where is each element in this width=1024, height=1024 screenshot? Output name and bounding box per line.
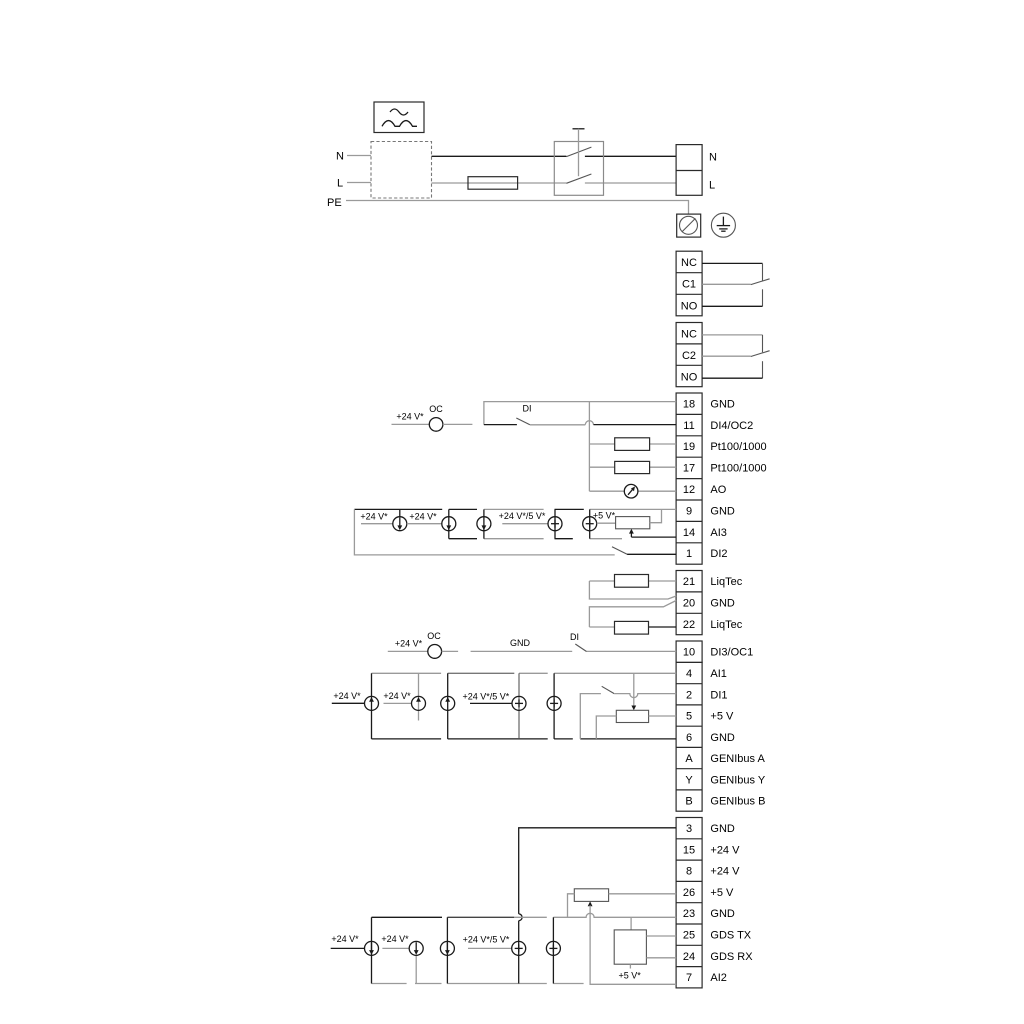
svg-text:GDS RX: GDS RX <box>710 951 753 963</box>
svg-text:15: 15 <box>683 844 695 856</box>
svg-text:A: A <box>685 753 693 765</box>
svg-text:+5 V*: +5 V* <box>593 511 616 521</box>
svg-text:+24 V*: +24 V* <box>360 512 388 522</box>
svg-text:+5 V: +5 V <box>710 711 734 723</box>
svg-text:GDS TX: GDS TX <box>710 930 751 942</box>
svg-text:19: 19 <box>683 441 695 453</box>
svg-text:5: 5 <box>686 711 692 723</box>
svg-text:AI1: AI1 <box>710 668 727 680</box>
svg-text:GND: GND <box>710 598 735 610</box>
svg-text:GENIbus B: GENIbus B <box>710 796 765 808</box>
svg-text:+24 V*: +24 V* <box>383 691 411 701</box>
svg-text:DI4/OC2: DI4/OC2 <box>710 420 753 432</box>
svg-text:NC: NC <box>681 328 697 340</box>
svg-text:LiqTec: LiqTec <box>710 619 742 631</box>
svg-text:8: 8 <box>686 866 692 878</box>
svg-text:B: B <box>685 796 692 808</box>
svg-text:7: 7 <box>686 972 692 984</box>
svg-text:DI: DI <box>570 632 579 642</box>
svg-text:Y: Y <box>685 774 693 786</box>
svg-text:GND: GND <box>710 398 735 410</box>
svg-text:+24 V*: +24 V* <box>333 691 361 701</box>
svg-text:N: N <box>709 152 717 164</box>
svg-text:L: L <box>709 180 715 192</box>
svg-text:23: 23 <box>683 908 695 920</box>
svg-text:NO: NO <box>681 300 698 312</box>
svg-text:18: 18 <box>683 398 695 410</box>
svg-text:AO: AO <box>710 484 726 496</box>
svg-text:6: 6 <box>686 732 692 744</box>
svg-text:N: N <box>336 151 344 163</box>
svg-text:C2: C2 <box>682 350 696 362</box>
svg-text:L: L <box>337 178 343 190</box>
svg-text:14: 14 <box>683 527 695 539</box>
svg-text:+24 V*: +24 V* <box>331 934 359 944</box>
svg-text:GENIbus A: GENIbus A <box>710 753 765 765</box>
svg-text:3: 3 <box>686 823 692 835</box>
svg-text:11: 11 <box>683 420 694 432</box>
svg-text:9: 9 <box>686 505 692 517</box>
svg-text:GND: GND <box>710 823 735 835</box>
svg-text:GND: GND <box>710 505 735 517</box>
svg-text:OC: OC <box>427 631 441 641</box>
svg-text:12: 12 <box>683 484 695 496</box>
svg-text:22: 22 <box>683 619 695 631</box>
svg-text:Pt100/1000: Pt100/1000 <box>710 463 766 475</box>
svg-text:25: 25 <box>683 930 695 942</box>
svg-text:AI2: AI2 <box>710 972 727 984</box>
svg-text:NC: NC <box>681 257 697 269</box>
svg-text:24: 24 <box>683 951 695 963</box>
svg-text:+24 V*/5 V*: +24 V*/5 V* <box>463 935 510 945</box>
svg-text:20: 20 <box>683 598 695 610</box>
svg-text:+24 V*/5 V*: +24 V*/5 V* <box>463 692 510 702</box>
svg-text:DI2: DI2 <box>710 548 727 560</box>
svg-text:GND: GND <box>510 638 531 648</box>
svg-text:DI3/OC1: DI3/OC1 <box>710 647 753 659</box>
svg-text:LiqTec: LiqTec <box>710 576 742 588</box>
svg-text:+24 V*: +24 V* <box>381 934 409 944</box>
svg-text:+24 V: +24 V <box>710 844 740 856</box>
svg-text:Pt100/1000: Pt100/1000 <box>710 441 766 453</box>
svg-text:DI: DI <box>523 404 532 414</box>
svg-text:NO: NO <box>681 372 698 384</box>
svg-text:2: 2 <box>686 689 692 701</box>
svg-text:OC: OC <box>429 404 443 414</box>
svg-text:4: 4 <box>686 668 692 680</box>
svg-text:+5 V: +5 V <box>710 887 734 899</box>
svg-text:+24 V*: +24 V* <box>409 512 437 522</box>
svg-text:PE: PE <box>327 197 342 209</box>
svg-text:C1: C1 <box>682 279 696 291</box>
svg-text:GND: GND <box>710 732 735 744</box>
svg-text:26: 26 <box>683 887 695 899</box>
svg-text:DI1: DI1 <box>710 689 727 701</box>
svg-text:+24 V*: +24 V* <box>395 639 423 649</box>
svg-text:17: 17 <box>683 463 695 475</box>
svg-text:GENIbus Y: GENIbus Y <box>710 774 765 786</box>
svg-text:10: 10 <box>683 647 695 659</box>
svg-text:+24 V*: +24 V* <box>396 412 424 422</box>
svg-text:AI3: AI3 <box>710 527 727 539</box>
svg-text:21: 21 <box>683 576 695 588</box>
svg-text:GND: GND <box>710 908 735 920</box>
svg-text:+5 V*: +5 V* <box>619 971 642 981</box>
svg-text:1: 1 <box>686 548 692 560</box>
svg-text:+24 V*/5 V*: +24 V*/5 V* <box>499 511 546 521</box>
svg-text:+24 V: +24 V <box>710 866 740 878</box>
